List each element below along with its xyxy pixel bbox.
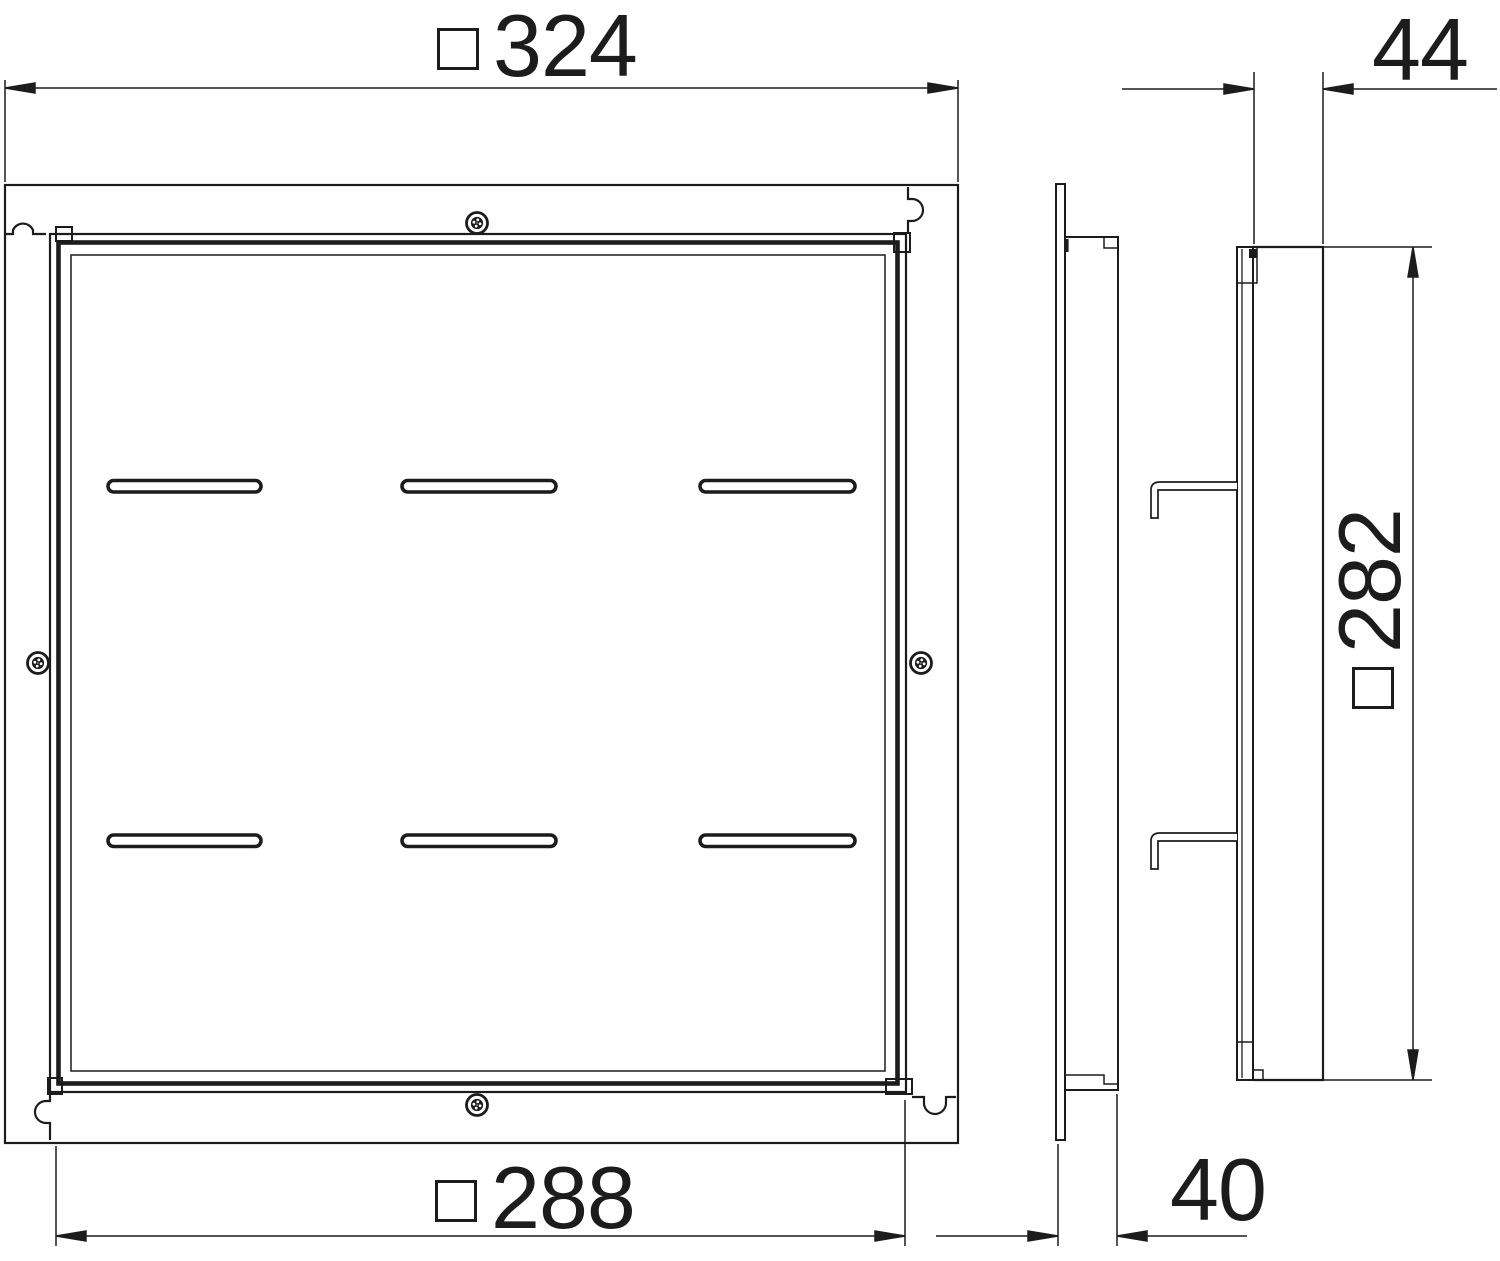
slot (108, 481, 261, 493)
square-symbol (435, 1180, 477, 1222)
technical-drawing: 324 44 282 288 40 (0, 0, 1500, 1261)
dimension-value: 324 (493, 0, 637, 95)
square-symbol (437, 28, 479, 70)
keyhole-top-right (908, 187, 923, 232)
keyhole-top-left (5, 224, 46, 234)
left-cover-body (1065, 237, 1118, 1090)
screw-bottom (467, 1095, 488, 1116)
dim-outer-width-lines (5, 80, 958, 182)
dimension-label-right-depth: 44 (1372, 6, 1468, 94)
side-view-right (1151, 247, 1323, 1080)
dimension-label-side-height: 282 (1326, 503, 1414, 709)
dimension-value: 40 (1170, 1140, 1266, 1239)
dimension-label-inner-width: 288 (435, 1154, 635, 1242)
right-cover-plate (1237, 247, 1253, 1080)
dimension-value: 44 (1372, 0, 1468, 99)
drawing-linework (0, 0, 1500, 1261)
slot (700, 481, 855, 493)
cover-outline-inner (71, 255, 885, 1071)
side-view-left (1056, 184, 1118, 1140)
screws (28, 213, 932, 1116)
front-view (5, 185, 958, 1143)
screw-top (467, 213, 488, 234)
right-top-corner-mark (1249, 249, 1257, 258)
screw-right (911, 653, 932, 674)
cover-slots (108, 481, 855, 847)
mounting-claw-upper (1151, 482, 1237, 518)
screw-left (28, 653, 49, 674)
left-frame-plate (1056, 184, 1065, 1140)
slot (402, 481, 556, 493)
cover-outline-outer (50, 234, 906, 1092)
dimension-label-outer-width: 324 (437, 2, 637, 90)
keyhole-bottom-left (35, 1093, 50, 1140)
keyhole-bottom-right (912, 1097, 956, 1114)
dimension-label-left-depth: 40 (1170, 1146, 1266, 1234)
slot (402, 835, 556, 847)
frame-outline (5, 185, 958, 1143)
dimension-value: 282 (1320, 509, 1419, 653)
right-bottom-foot (1253, 1070, 1263, 1080)
cover-outline-middle (59, 243, 898, 1084)
dimension-value: 288 (491, 1148, 635, 1247)
mounting-claw-lower (1151, 833, 1237, 869)
slot (700, 835, 855, 847)
right-frame-outline (1253, 247, 1323, 1080)
square-symbol (1352, 667, 1394, 709)
slot (108, 835, 261, 847)
